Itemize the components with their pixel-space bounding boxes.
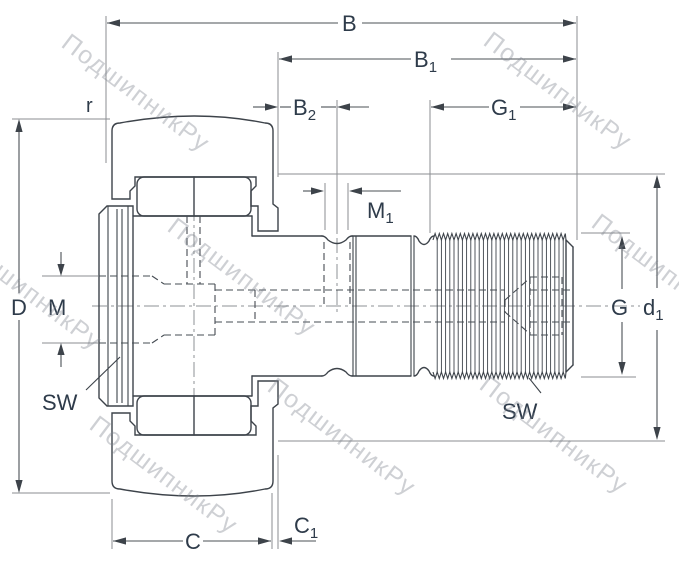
watermark-text: ПодшипникРу	[478, 26, 637, 155]
watermark-text: ПодшипникРу	[586, 208, 679, 337]
sw-left-leader	[86, 357, 120, 390]
dim-label-r: r	[86, 95, 93, 117]
dim-label-B1: B1	[414, 47, 437, 76]
dim-label-G1: G1	[491, 95, 516, 124]
cam-follower-drawing: B B1 B2 G1 M1 r D M SW C C1 G d1 SW Подш…	[0, 0, 679, 563]
watermark-text: ПодшипникРу	[84, 410, 243, 539]
watermark-text: ПодшипникРу	[262, 372, 421, 501]
watermark-text: ПодшипникРу	[0, 226, 107, 355]
thread	[433, 234, 566, 379]
dim-label-B: B	[342, 11, 357, 36]
sw-right-leader	[529, 378, 541, 393]
dim-label-C: C	[185, 529, 201, 554]
technical-drawing-canvas: B B1 B2 G1 M1 r D M SW C C1 G d1 SW Подш…	[0, 0, 679, 563]
dim-label-d1: d1	[643, 295, 664, 324]
dim-label-M1: M1	[367, 198, 394, 227]
dim-label-SW-left: SW	[42, 390, 78, 415]
watermark-text: ПодшипникРу	[474, 370, 633, 499]
dim-label-G: G	[611, 295, 628, 320]
watermark-text: ПодшипникРу	[56, 28, 215, 157]
dim-label-C1: C1	[294, 513, 318, 542]
dim-M1	[303, 187, 401, 194]
dim-label-B2: B2	[293, 95, 316, 124]
hex-socket-hidden-left	[99, 276, 215, 343]
watermarks: ПодшипникРу ПодшипникРу ПодшипникРу Подш…	[0, 26, 679, 539]
